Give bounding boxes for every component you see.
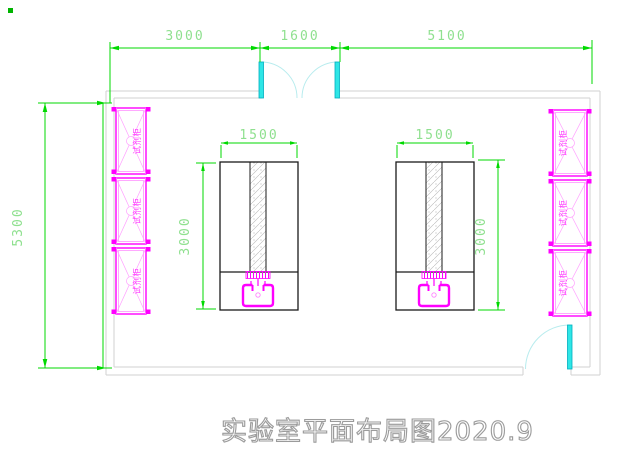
lab-bench-left [220, 162, 298, 310]
dim-label-bench-right-depth: 3000 [474, 216, 489, 255]
cabinet-label: 试剂柜 [558, 269, 569, 296]
cabinet-label: 试剂柜 [558, 129, 569, 156]
reagent-cabinet-column-left: 试剂柜 试剂柜 试剂柜 [112, 107, 151, 314]
door-swing-arc-right [302, 62, 338, 98]
dimension-bench-left-depth [196, 163, 216, 309]
dim-extension-lines [110, 40, 592, 103]
door-leaf-left [259, 62, 264, 98]
dim-label-top-middle: 1600 [280, 29, 319, 44]
sink-basin [243, 285, 273, 306]
cabinet-label: 试剂柜 [132, 197, 143, 224]
dim-arrows [43, 101, 106, 371]
faucet-grill [422, 272, 446, 279]
dim-extension-lines [38, 103, 112, 368]
dim-label-bench-right-width: 1500 [415, 128, 454, 143]
faucet-grill [246, 272, 270, 279]
door-jamb-lines-bottom [523, 367, 571, 375]
dim-label-left-wall: 5300 [11, 207, 26, 246]
drawing-title: 实验室平面布局图2020.9 [221, 411, 534, 448]
door-swing-arc [526, 325, 570, 369]
dim-extension-lines [196, 163, 216, 309]
dimension-left-wall [38, 101, 112, 371]
door-swing-arc-left [261, 62, 297, 98]
faucet-spouts [251, 279, 265, 286]
sink-drain [256, 293, 260, 297]
dim-label-top-left: 3000 [165, 29, 204, 44]
cabinet-label: 试剂柜 [132, 127, 143, 154]
dim-extension-lines [397, 145, 473, 158]
floorplan-canvas: 试剂柜 试剂柜 试剂柜 [0, 0, 619, 469]
dim-label-bench-left-width: 1500 [239, 128, 278, 143]
reagent-cabinet: 试剂柜 [112, 247, 151, 314]
reagent-cabinet: 试剂柜 [112, 177, 151, 244]
door-leaf [568, 325, 573, 369]
sink-symbol [243, 272, 273, 307]
door-jamb-lines-top [262, 91, 338, 98]
dim-extension-lines [221, 145, 297, 158]
reagent-cabinet: 试剂柜 [549, 179, 592, 246]
dim-label-top-right: 5100 [427, 29, 466, 44]
dimension-top-chain [110, 40, 592, 103]
lab-bench-right [396, 162, 474, 310]
reagent-cabinet-column-right: 试剂柜 试剂柜 试剂柜 [549, 109, 592, 316]
corner-mark [8, 8, 13, 13]
top-double-door [259, 62, 340, 98]
cad-floorplan-view: 试剂柜 试剂柜 试剂柜 [0, 0, 619, 469]
door-leaf-right [335, 62, 340, 98]
dimension-bench-right-width [397, 141, 473, 158]
reagent-cabinet: 试剂柜 [112, 107, 151, 174]
sink-symbol [419, 272, 449, 307]
dimension-bench-left-width [221, 141, 297, 158]
cabinet-label: 试剂柜 [132, 267, 143, 294]
sink-drain [432, 293, 436, 297]
dim-label-bench-left-depth: 3000 [178, 216, 193, 255]
sink-basin [419, 285, 449, 306]
reagent-cabinet: 试剂柜 [549, 109, 592, 176]
reagent-cabinet: 试剂柜 [549, 249, 592, 316]
bottom-right-door [526, 325, 573, 369]
faucet-spouts [427, 279, 441, 286]
cabinet-label: 试剂柜 [558, 199, 569, 226]
